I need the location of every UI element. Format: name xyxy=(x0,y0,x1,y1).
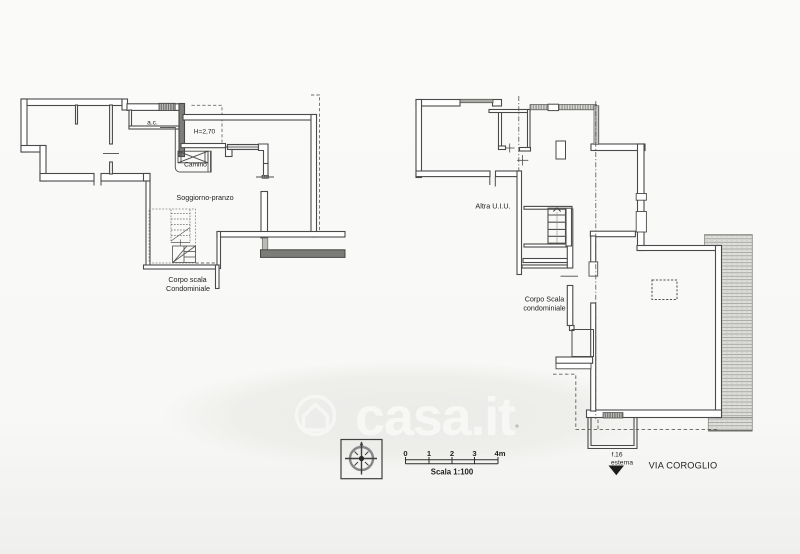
svg-text:Altra U.I.U.: Altra U.I.U. xyxy=(475,201,510,210)
svg-text:a.c.: a.c. xyxy=(147,119,158,126)
svg-text:casa.it: casa.it xyxy=(355,387,516,447)
svg-text:Camino: Camino xyxy=(184,162,207,169)
svg-text:Scala 1:100: Scala 1:100 xyxy=(431,467,474,476)
svg-text:f.16: f.16 xyxy=(612,451,623,458)
svg-text:0: 0 xyxy=(403,449,407,458)
svg-text:H=2,70: H=2,70 xyxy=(194,128,216,135)
svg-text:Corpo Scala: Corpo Scala xyxy=(525,294,565,303)
svg-text:Condominiale: Condominiale xyxy=(166,284,210,293)
svg-text:VIA COROGLIO: VIA COROGLIO xyxy=(649,461,718,471)
svg-text:Soggiorno-pranzo: Soggiorno-pranzo xyxy=(176,193,233,202)
svg-text:condominiale: condominiale xyxy=(523,303,565,312)
svg-text:3: 3 xyxy=(472,449,476,458)
svg-text:4m: 4m xyxy=(495,449,506,458)
svg-text:2: 2 xyxy=(450,449,454,458)
svg-text:Corpo scala: Corpo scala xyxy=(168,275,206,284)
